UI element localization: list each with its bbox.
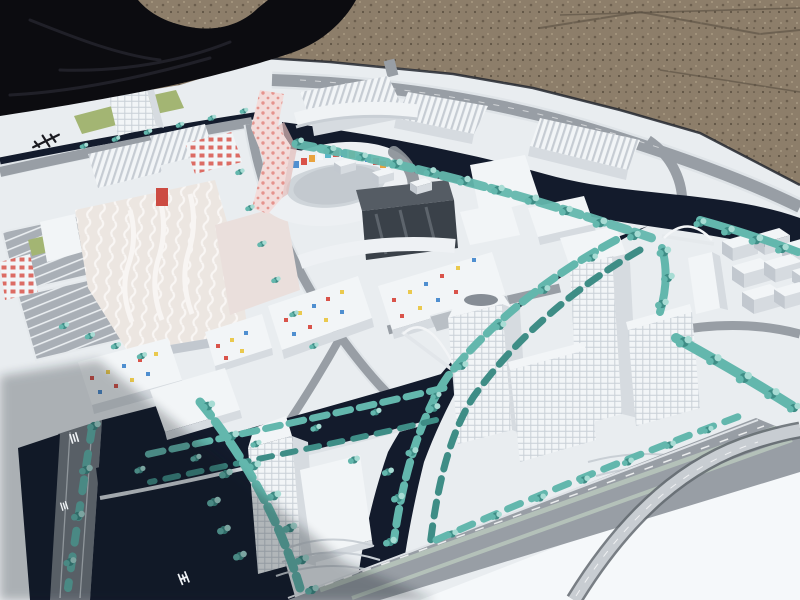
slab-tower-east xyxy=(626,304,700,426)
top-road-stub xyxy=(389,60,393,76)
red-accent xyxy=(156,188,168,206)
photo-architectural-model: Outdoor photograph of an architectural s… xyxy=(0,0,800,600)
scene: Outdoor photograph of an architectural s… xyxy=(0,0,800,600)
